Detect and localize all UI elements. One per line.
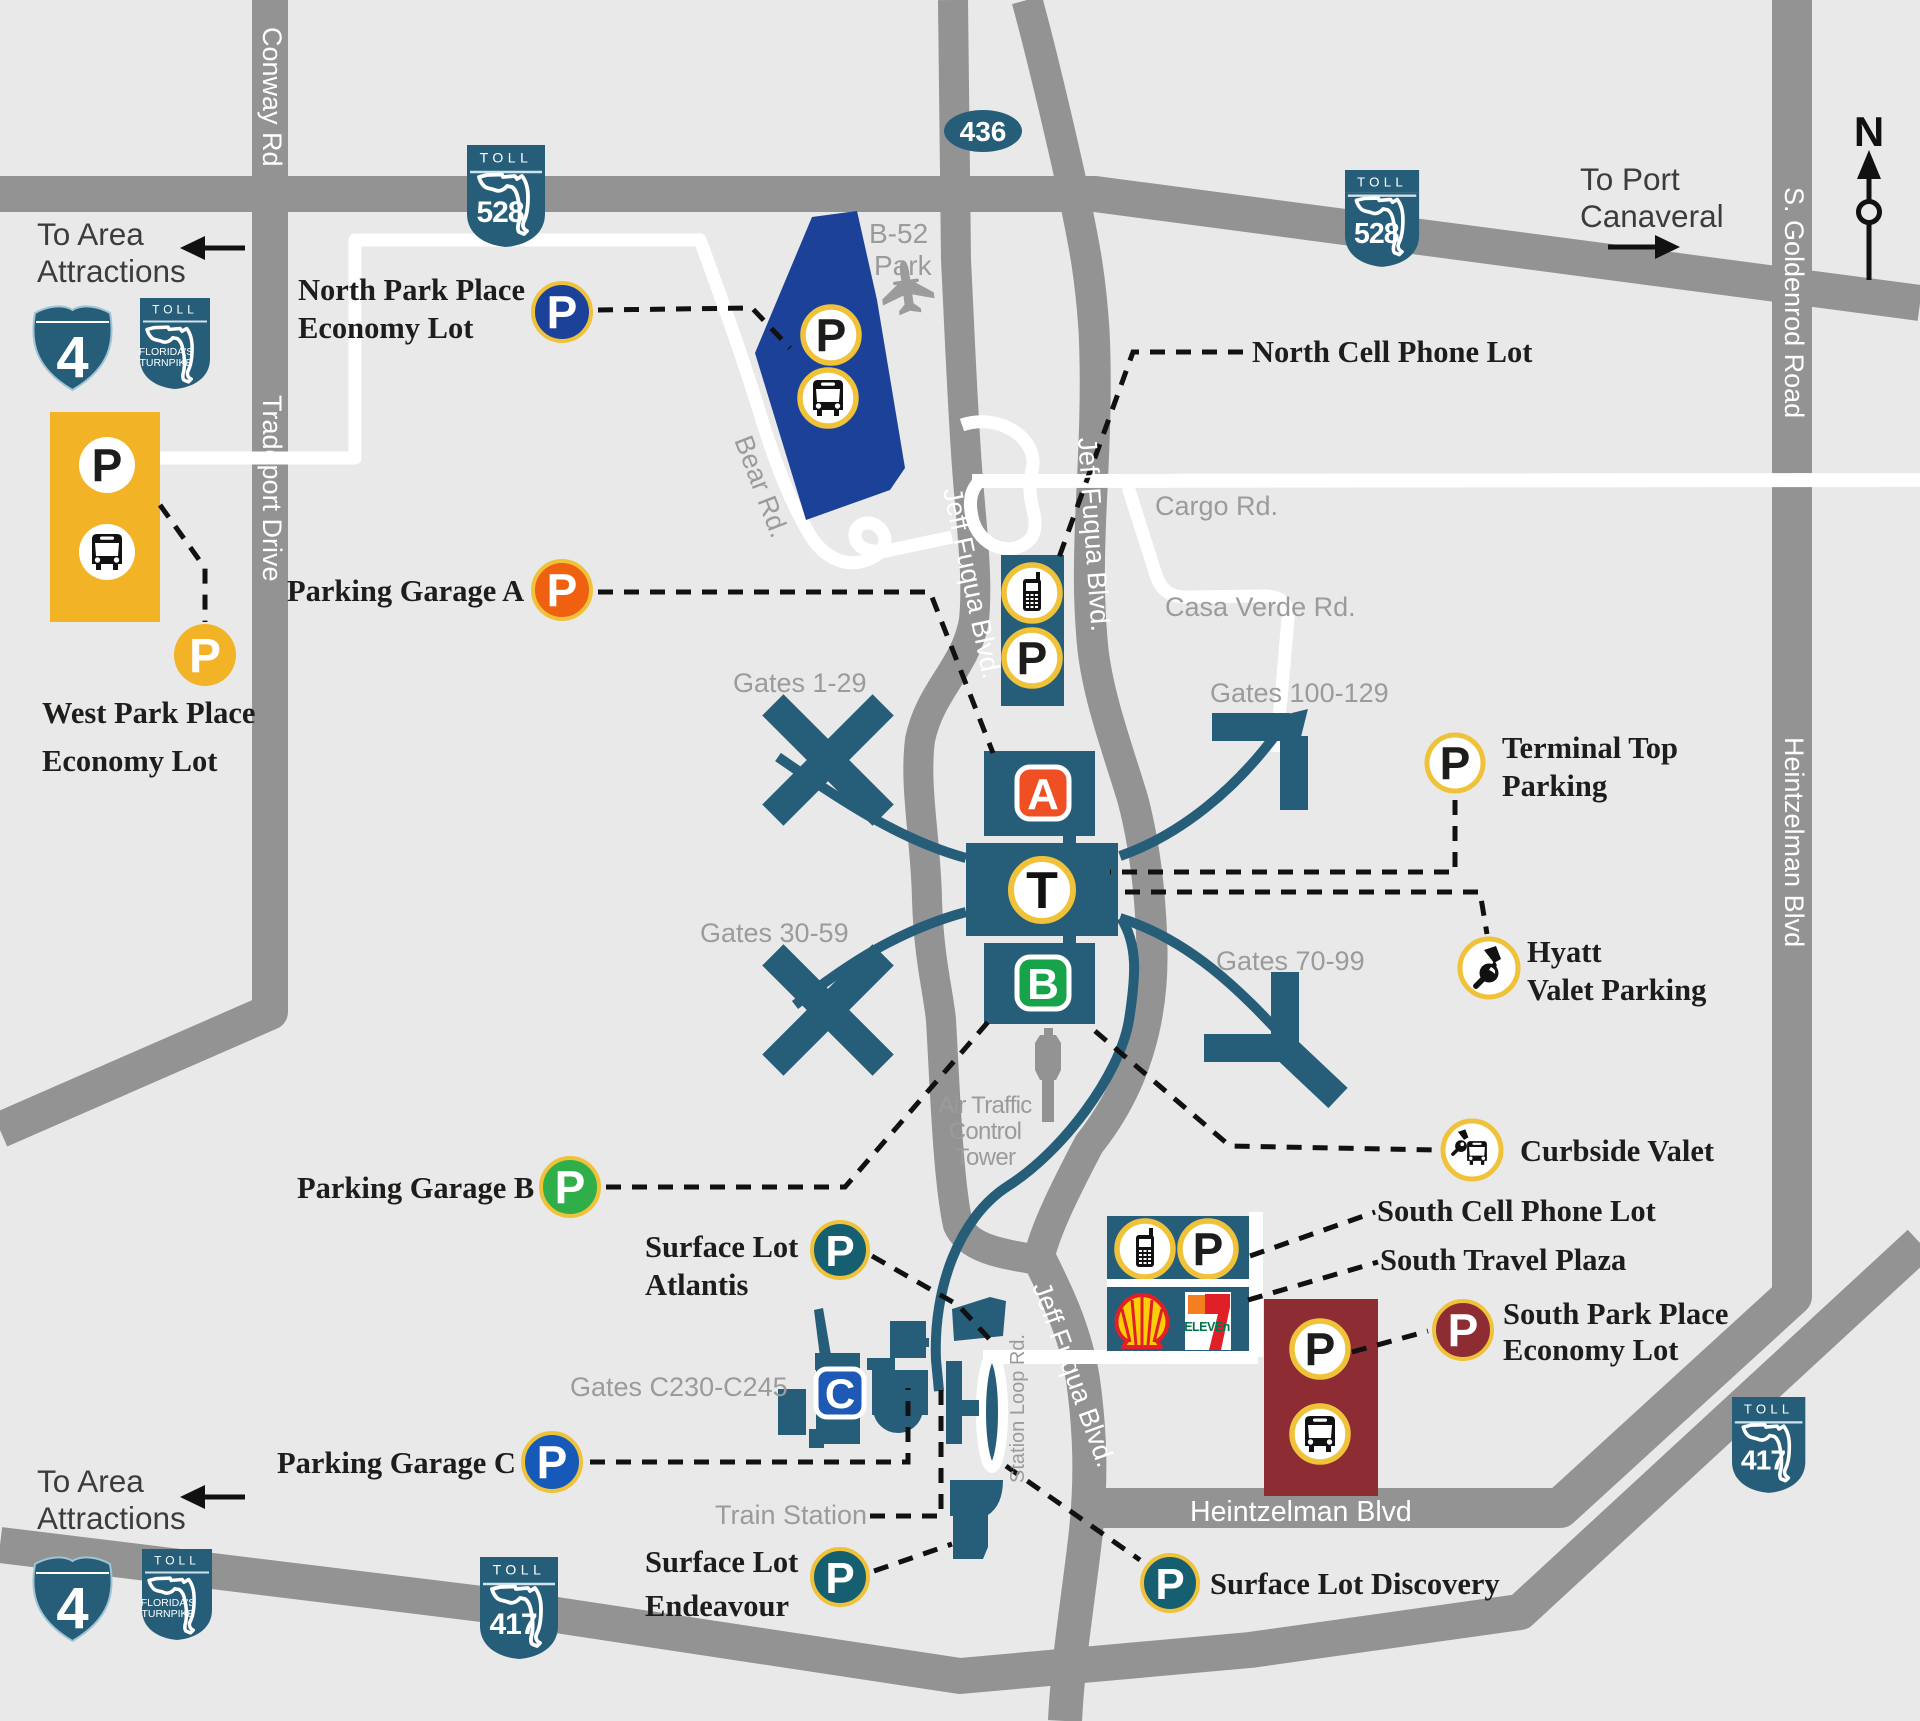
svg-text:P: P: [92, 440, 123, 492]
svg-text:Heintzelman Blvd: Heintzelman Blvd: [1779, 737, 1809, 947]
svg-text:South Cell Phone Lot: South Cell Phone Lot: [1377, 1194, 1657, 1228]
svg-text:Economy Lot: Economy Lot: [298, 311, 474, 345]
svg-text:Endeavour: Endeavour: [645, 1589, 789, 1623]
svg-text:Surface Lot: Surface Lot: [645, 1545, 799, 1579]
svg-text:Gates 100-129: Gates 100-129: [1210, 678, 1389, 708]
svg-text:4: 4: [56, 1576, 88, 1641]
svg-text:Casa Verde Rd.: Casa Verde Rd.: [1165, 592, 1356, 622]
svg-text:North Park Place: North Park Place: [298, 273, 525, 307]
svg-text:West Park Place: West Park Place: [42, 696, 255, 730]
svg-text:436: 436: [960, 116, 1007, 147]
svg-text:P: P: [1155, 1560, 1184, 1609]
svg-text:C: C: [825, 1370, 855, 1417]
svg-text:Gates 70-99: Gates 70-99: [1216, 946, 1365, 976]
svg-text:Terminal Top: Terminal Top: [1502, 731, 1678, 765]
svg-text:Valet Parking: Valet Parking: [1527, 973, 1706, 1007]
svg-text:B: B: [1027, 960, 1059, 1009]
svg-text:To Port: To Port: [1580, 161, 1680, 197]
svg-text:Train Station: Train Station: [715, 1500, 867, 1530]
svg-text:4: 4: [56, 325, 88, 390]
svg-text:North Cell Phone Lot: North Cell Phone Lot: [1252, 335, 1533, 369]
svg-text:P: P: [1440, 738, 1471, 790]
svg-text:Park: Park: [874, 250, 933, 281]
svg-text:P: P: [547, 565, 578, 617]
svg-text:417: 417: [489, 1608, 536, 1641]
svg-text:Tradeport Drive: Tradeport Drive: [257, 395, 287, 582]
svg-text:P: P: [555, 1162, 586, 1214]
svg-text:Hyatt: Hyatt: [1527, 935, 1602, 969]
svg-text:Economy Lot: Economy Lot: [1503, 1333, 1679, 1367]
svg-text:Parking Garage B: Parking Garage B: [297, 1171, 534, 1205]
svg-text:Parking Garage A: Parking Garage A: [287, 574, 524, 608]
svg-text:528: 528: [476, 196, 523, 229]
svg-text:Air Traffic: Air Traffic: [938, 1092, 1032, 1119]
svg-text:T: T: [1026, 862, 1058, 920]
svg-text:Control: Control: [949, 1118, 1021, 1145]
svg-text:Station Loop Rd.: Station Loop Rd.: [1007, 1334, 1029, 1483]
svg-text:528: 528: [1354, 218, 1399, 250]
svg-text:P: P: [1448, 1305, 1479, 1357]
svg-text:S. Goldenrod Road: S. Goldenrod Road: [1779, 187, 1809, 418]
svg-text:Parking: Parking: [1502, 769, 1607, 803]
svg-text:Curbside Valet: Curbside Valet: [1520, 1134, 1715, 1168]
svg-text:Canaveral: Canaveral: [1580, 198, 1724, 234]
svg-text:A: A: [1027, 770, 1059, 819]
svg-text:P: P: [537, 1437, 568, 1489]
svg-text:Surface Lot Discovery: Surface Lot Discovery: [1210, 1567, 1500, 1601]
svg-text:Gates 1-29: Gates 1-29: [733, 668, 867, 698]
svg-text:P: P: [189, 630, 221, 683]
svg-text:ELEVEn: ELEVEn: [1184, 1320, 1230, 1334]
svg-text:Attractions: Attractions: [37, 1500, 186, 1536]
svg-text:South Travel Plaza: South Travel Plaza: [1380, 1243, 1626, 1277]
svg-text:Surface Lot: Surface Lot: [645, 1230, 799, 1264]
svg-text:Tower: Tower: [955, 1144, 1016, 1171]
svg-text:Heintzelman Blvd: Heintzelman Blvd: [1190, 1496, 1412, 1528]
svg-text:Atlantis: Atlantis: [645, 1268, 749, 1302]
svg-text:Gates C230-C245: Gates C230-C245: [570, 1372, 788, 1402]
svg-text:N: N: [1854, 108, 1884, 155]
svg-text:Attractions: Attractions: [37, 253, 186, 289]
svg-text:Conway Rd: Conway Rd: [257, 27, 287, 167]
svg-text:P: P: [825, 1554, 854, 1603]
svg-text:417: 417: [1741, 1443, 1785, 1475]
svg-text:Parking Garage C: Parking Garage C: [277, 1446, 516, 1480]
svg-text:Gates 30-59: Gates 30-59: [700, 918, 849, 948]
svg-text:Economy Lot: Economy Lot: [42, 744, 218, 778]
svg-text:Cargo Rd.: Cargo Rd.: [1155, 491, 1278, 521]
svg-text:B-52: B-52: [869, 218, 928, 249]
svg-text:P: P: [547, 287, 578, 339]
svg-text:South Park Place: South Park Place: [1503, 1297, 1728, 1331]
svg-text:To Area: To Area: [37, 216, 144, 252]
svg-text:To Area: To Area: [37, 1463, 144, 1499]
svg-text:P: P: [825, 1227, 854, 1276]
